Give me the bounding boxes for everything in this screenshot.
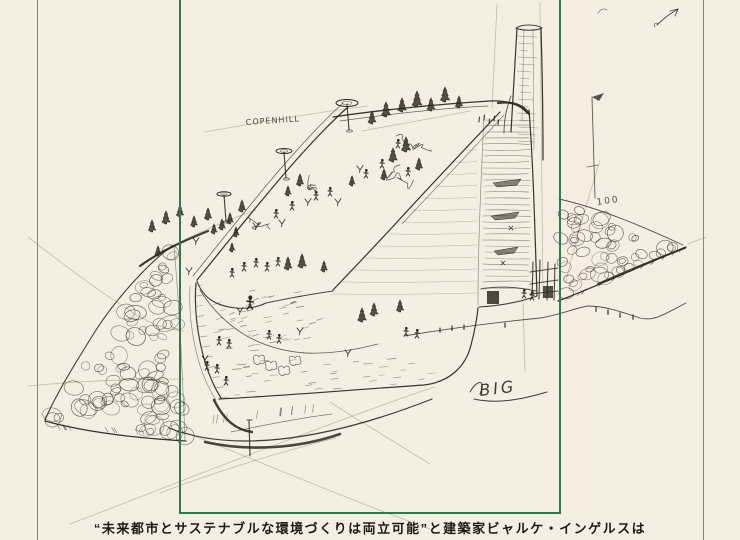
green-frame [179, 0, 561, 514]
magazine-page: COPENHILL 100 BIG “未来都市とサステナブルな環境づくりは両立可… [0, 0, 740, 540]
caption-text: “未来都市とサステナブルな環境づくりは両立可能”と建築家ビャルケ・インゲルスは [0, 518, 740, 537]
sketch-elevation-label: 100 [596, 195, 620, 208]
